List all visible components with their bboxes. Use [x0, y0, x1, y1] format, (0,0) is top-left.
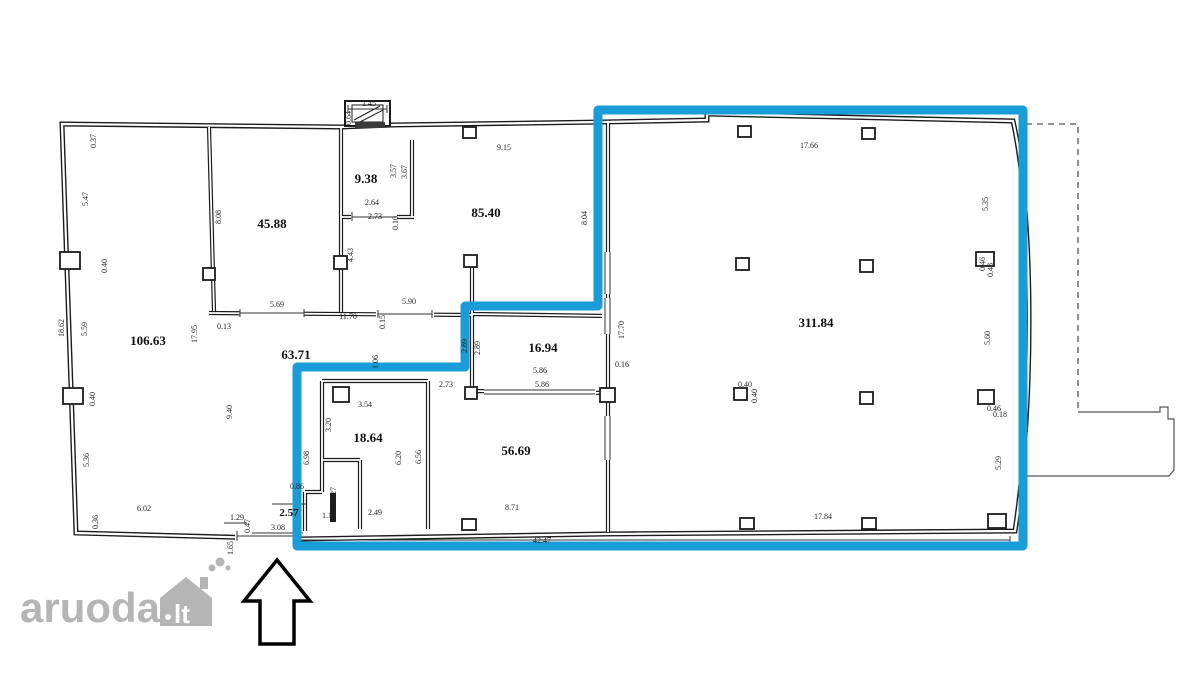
- dimension-label: 8.08: [214, 210, 223, 224]
- dimension-label: 0.86: [290, 482, 304, 491]
- dimension-label: 17.70: [617, 321, 626, 339]
- neighbor-dashed-line: [1026, 124, 1078, 412]
- dimension-label: 5.36: [82, 453, 91, 467]
- dimension-label: 1.06: [371, 355, 380, 369]
- wall-post: [465, 387, 477, 399]
- dimension-label: 3.20: [324, 418, 333, 432]
- dimension-label: 0.15: [378, 315, 387, 329]
- dimension-label: 9.15: [497, 143, 511, 152]
- walls: [60, 101, 1029, 544]
- dimension-label: 1.65: [226, 541, 235, 555]
- column: [860, 260, 873, 272]
- dimension-label: 0.36: [91, 515, 100, 529]
- dimension-label: 18.62: [57, 319, 66, 337]
- dimension-label: 0.48: [986, 263, 995, 277]
- dimension-label: 6.56: [414, 450, 423, 464]
- dimension-label: 0.40: [100, 259, 109, 273]
- dimension-label: 0.37: [89, 134, 98, 148]
- dimension-label: 1.16: [322, 511, 336, 520]
- pilaster: [740, 518, 754, 529]
- wall-post: [600, 388, 615, 402]
- column: [860, 392, 873, 404]
- dimension-label: 5.86: [535, 380, 549, 389]
- watermark-logo: aruodas lt: [20, 558, 231, 632]
- wall-niche: [60, 252, 80, 269]
- dimension-label: 0.64: [344, 111, 353, 125]
- dimension-label: 0.16: [615, 360, 629, 369]
- column: [464, 255, 477, 267]
- neighbor-outline: [1016, 124, 1174, 476]
- room-area-label: 106.63: [130, 333, 166, 348]
- watermark-house-icon: lt: [160, 558, 231, 630]
- dimension-label: 8.04: [580, 211, 589, 225]
- pilaster: [738, 126, 751, 137]
- room-area-label: 18.64: [353, 430, 383, 445]
- dimension-label: 5.29: [994, 456, 1003, 470]
- wall-post: [333, 387, 349, 402]
- dimension-label: 5.35: [981, 197, 990, 211]
- pilaster: [203, 268, 215, 280]
- dimension-label: 8.71: [505, 503, 519, 512]
- pilaster: [463, 127, 476, 138]
- dimension-label: 1.45: [362, 99, 376, 108]
- dimension-label: 17.66: [800, 141, 818, 150]
- dimension-label: 0.40: [88, 392, 97, 406]
- dimension-label: 5.90: [402, 297, 416, 306]
- dimension-label: 17.95: [190, 325, 199, 343]
- pilaster: [862, 518, 876, 529]
- dimension-label: 6.02: [137, 504, 151, 513]
- neighbor-solid-line: [1016, 407, 1174, 476]
- dimension-label: 2.64: [365, 198, 379, 207]
- dimension-label: 3.67: [400, 165, 409, 179]
- dimension-label: 5.59: [80, 322, 89, 336]
- dimension-label: 6.98: [302, 451, 311, 465]
- room-area-label: 63.71: [281, 347, 310, 362]
- dimension-label: 9.40: [225, 405, 234, 419]
- room-area-label: 85.40: [471, 205, 500, 220]
- dimension-label: 17.84: [814, 512, 832, 521]
- room-area-label: 16.94: [528, 340, 558, 355]
- wall-niche: [63, 388, 83, 404]
- watermark-tld-text: lt: [174, 599, 190, 629]
- dimension-label: 2.49: [368, 508, 382, 517]
- dimension-label: 0.18: [993, 410, 1007, 419]
- pilaster: [462, 519, 476, 530]
- room-area-label: 9.38: [355, 171, 378, 186]
- dimension-label: 5.47: [81, 192, 90, 206]
- dimension-label: 3.08: [271, 523, 285, 532]
- dimension-label: 0.47: [243, 519, 252, 533]
- entrance-arrow-icon: [244, 560, 310, 644]
- pilaster: [862, 128, 875, 139]
- dimension-label: 0.40: [750, 389, 759, 403]
- dimension-label: 0.10: [391, 216, 400, 230]
- column: [736, 258, 749, 270]
- wall-niche: [988, 514, 1006, 528]
- dimension-label: 2.89: [473, 341, 482, 355]
- floor-plan-svg: 106.6345.889.3885.4063.7116.9418.6456.69…: [0, 0, 1200, 675]
- dimension-label: 5.69: [270, 300, 284, 309]
- dimension-label: 3.57: [389, 164, 398, 178]
- dimension-label: 3.54: [358, 400, 372, 409]
- wall-niche: [978, 390, 994, 404]
- dimension-label: 2.73: [368, 212, 382, 221]
- dimension-label: 2.73: [439, 380, 453, 389]
- room-area-label: 311.84: [798, 315, 834, 330]
- watermark-brand-text: aruodas: [20, 584, 183, 631]
- dimension-label: 4.43: [346, 248, 355, 262]
- dimension-label: 11.70: [339, 312, 357, 321]
- dimension-label: 0.13: [217, 322, 231, 331]
- outer-wall: [62, 114, 1029, 539]
- column: [734, 388, 747, 400]
- room-area-label: 2.57: [279, 507, 299, 519]
- dimension-label: 2.89: [460, 339, 469, 353]
- dimension-label: 2.27: [329, 487, 338, 501]
- dimension-label: 1.29: [230, 513, 244, 522]
- dimension-label: 0.40: [738, 380, 752, 389]
- dimension-label: 42.47: [533, 536, 551, 545]
- room-area-label: 45.88: [257, 216, 287, 231]
- dimension-label: 5.60: [983, 331, 992, 345]
- dimension-label: 6.20: [394, 451, 403, 465]
- room-area-label: 56.69: [501, 443, 531, 458]
- dimension-label: 5.86: [533, 366, 547, 375]
- floor-plan-page: 106.6345.889.3885.4063.7116.9418.6456.69…: [0, 0, 1200, 675]
